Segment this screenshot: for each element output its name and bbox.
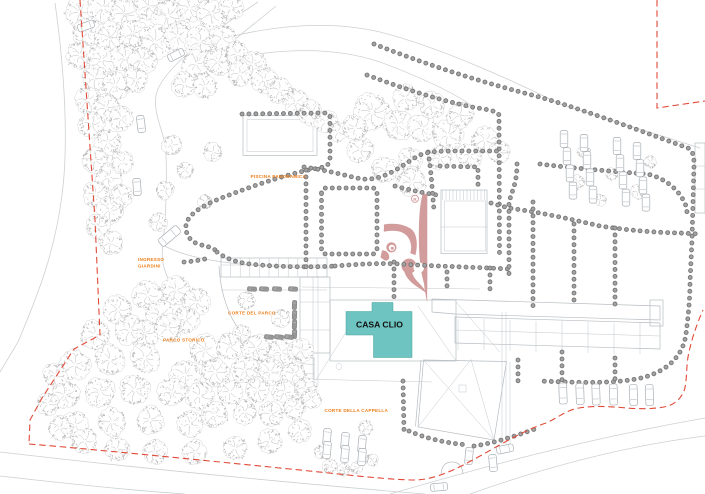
svg-text:CORTE DELLA CAPPELLA: CORTE DELLA CAPPELLA: [325, 408, 389, 413]
svg-text:R: R: [413, 197, 417, 203]
svg-text:GIARDINI: GIARDINI: [138, 264, 161, 269]
svg-text:CASA CLIO: CASA CLIO: [356, 319, 403, 329]
svg-text:CORTE DEL PARCO: CORTE DEL PARCO: [228, 311, 276, 316]
svg-text:PISCINA PANORAMICA: PISCINA PANORAMICA: [251, 174, 307, 179]
svg-text:INGRESSO: INGRESSO: [138, 257, 164, 262]
svg-text:PARCO STORICO: PARCO STORICO: [163, 338, 205, 343]
